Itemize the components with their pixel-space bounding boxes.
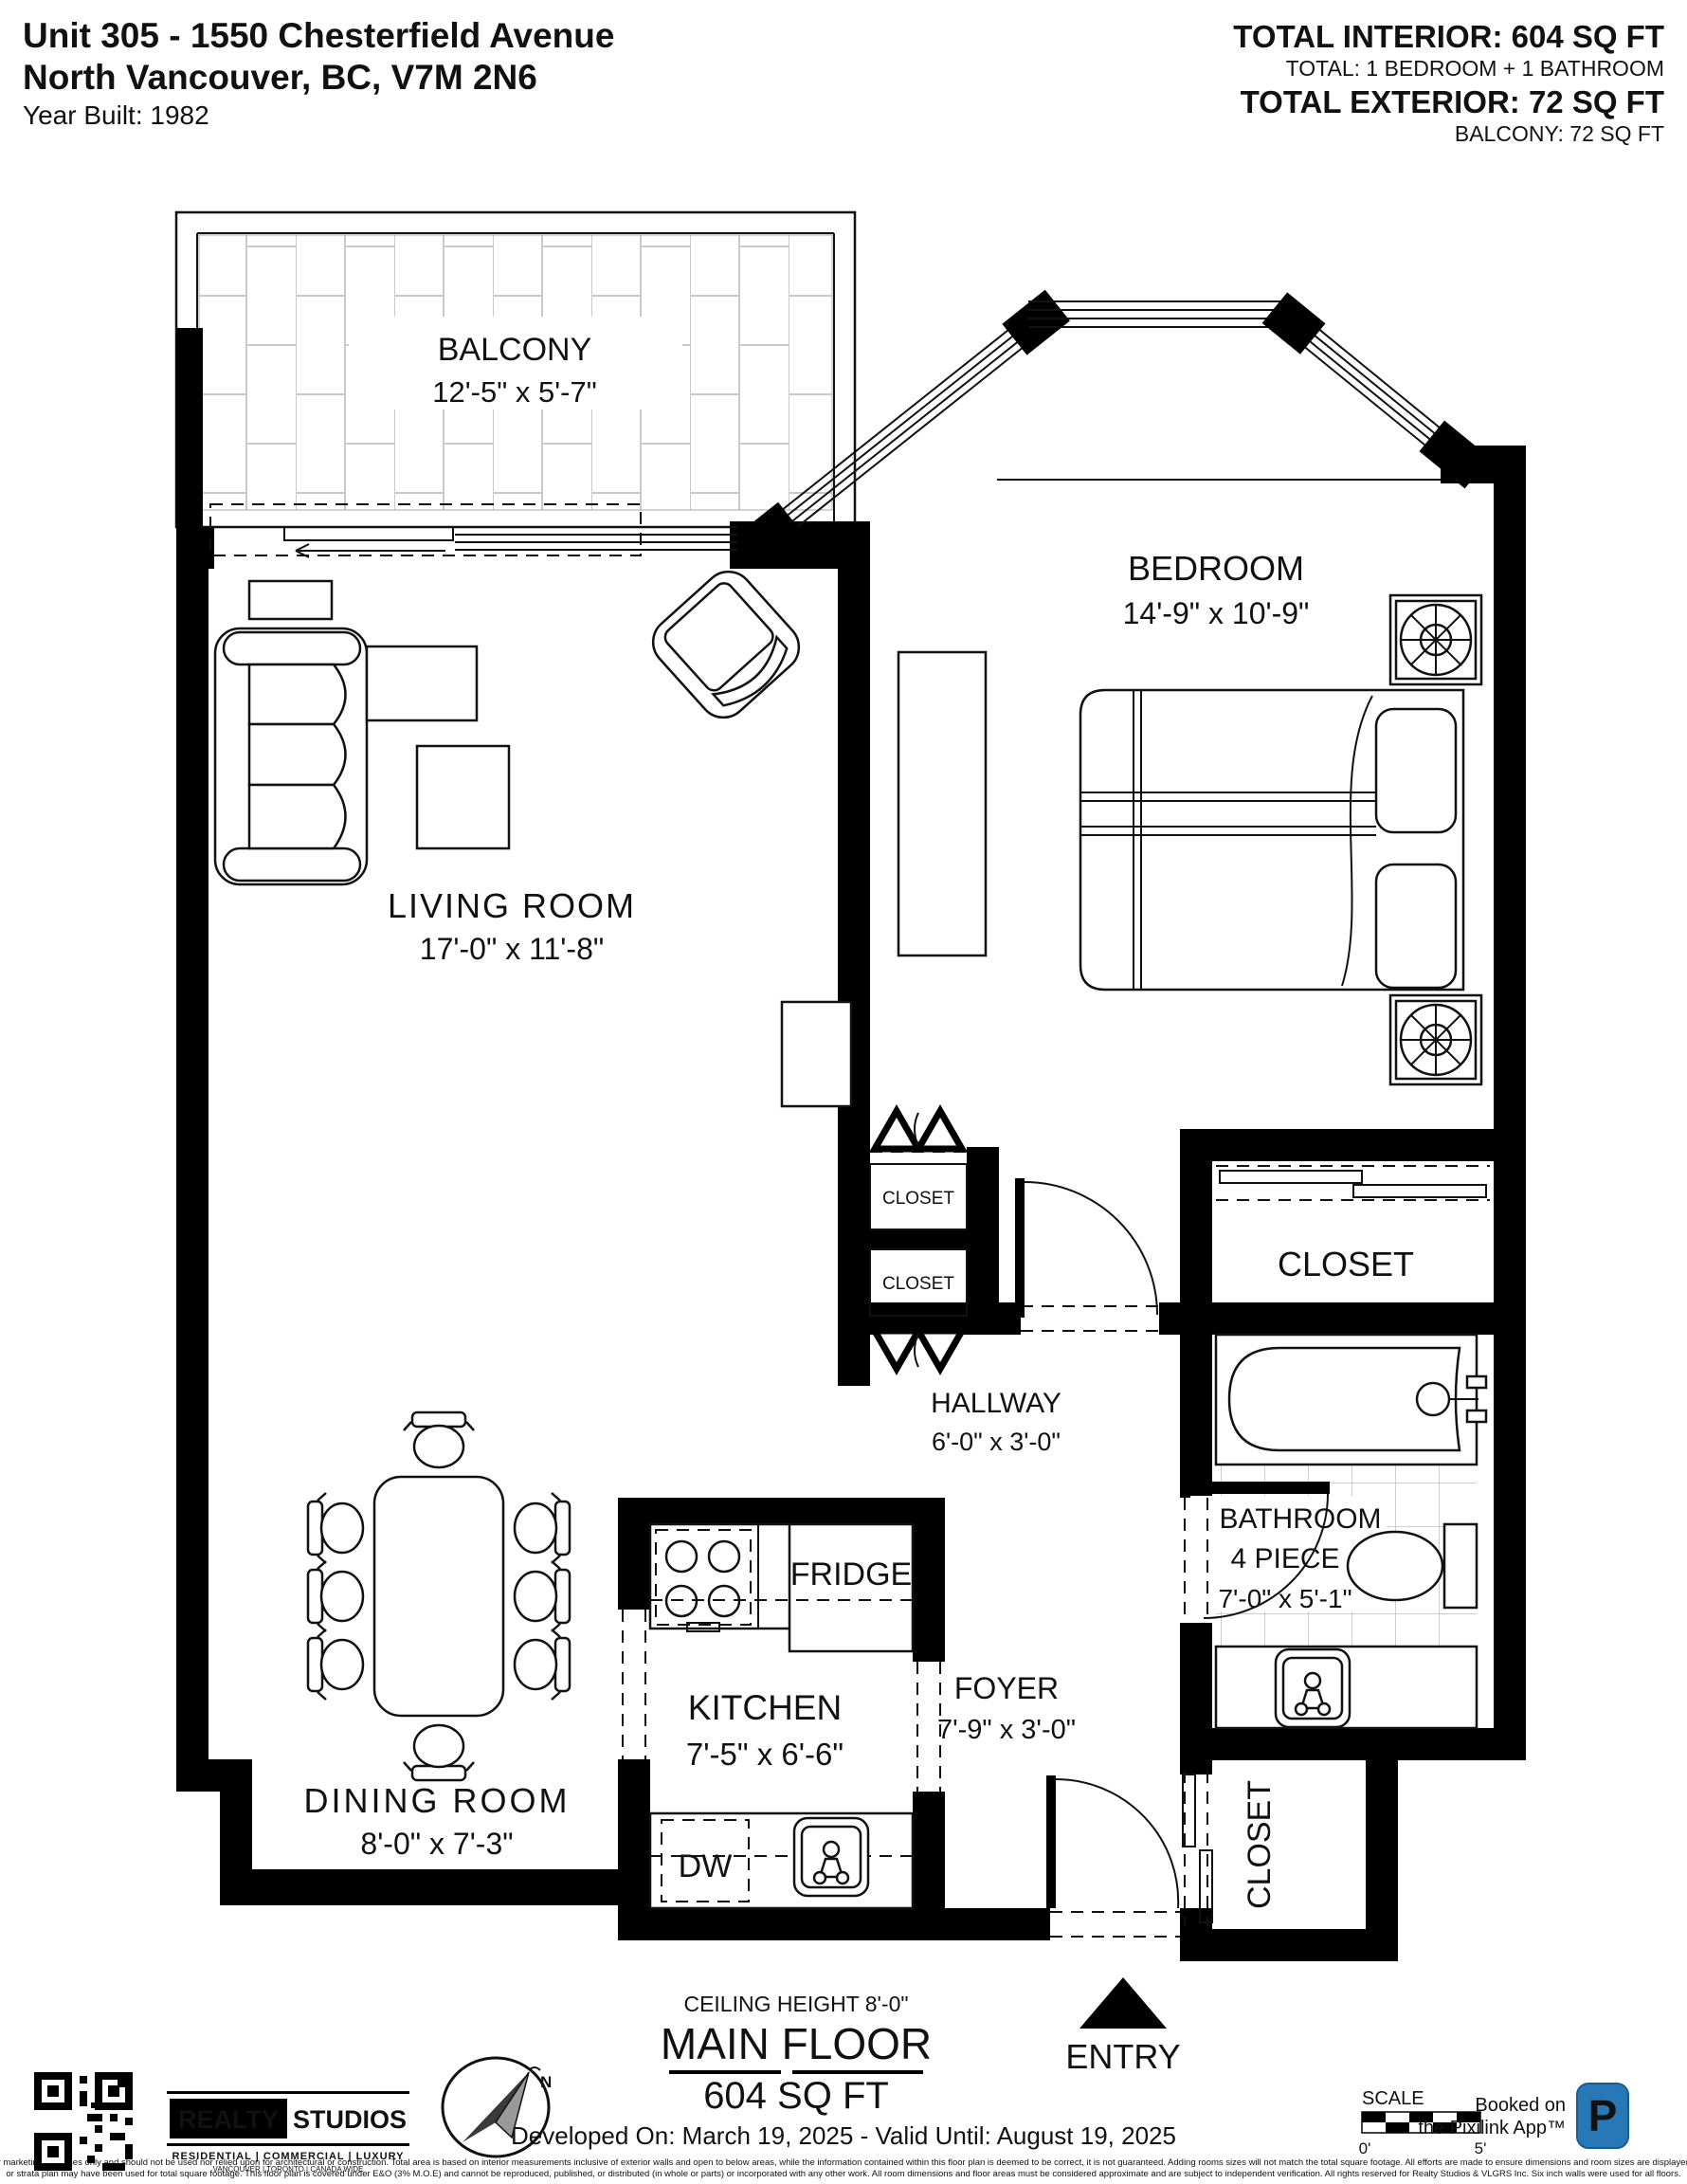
walkin-closet-label: CLOSET [1278,1245,1414,1283]
pixilink-line2: the Pixilink App™ [1418,2118,1566,2138]
header: Unit 305 - 1550 Chesterfield Avenue Nort… [23,16,1664,146]
living-room-label: LIVING ROOM [388,886,636,925]
side-table [249,581,332,619]
bedroom-door [1015,1178,1159,1331]
foyer-label: FOYER [954,1671,1059,1705]
logo-studios: STUDIOS [293,2105,407,2134]
dining-room-label: DINING ROOM [304,1781,571,1820]
total-interior: TOTAL INTERIOR: 604 SQ FT [1233,19,1664,54]
bathroom-type: 4 PIECE [1230,1543,1339,1574]
living-room-dims: 17'-0" x 11'-8" [420,932,604,966]
address-line2: North Vancouver, BC, V7M 2N6 [23,58,537,97]
nightstand-fan-icon [1390,595,1481,684]
svg-text:N: N [540,2073,552,2091]
bathroom-sink [1276,1649,1350,1727]
coffee-table [417,746,509,848]
logo-cities: VANCOUVER | TORONTO | CANADA WIDE [213,2165,364,2174]
media-console [782,1002,851,1106]
entry-arrow-icon [1079,1977,1167,2029]
plan-notes: CEILING HEIGHT 8'-0" MAIN FLOOR 604 SQ F… [661,1992,932,2117]
logo-tagline: RESIDENTIAL | COMMERCIAL | LUXURY [172,2151,405,2162]
entry-closet-label: CLOSET [1242,1780,1278,1909]
pillow [1376,864,1456,988]
main-floor-area: 604 SQ FT [703,2075,889,2117]
validity-dates: Developed On: March 19, 2025 - Valid Unt… [511,2121,1176,2150]
kitchen-dims: 7'-5" x 6'-6" [686,1737,843,1772]
total-exterior-sub: BALCONY: 72 SQ FT [1455,121,1664,146]
bay-window-right [1262,292,1490,488]
console-table [367,646,477,720]
kitchen: FRIDGE KITCHEN 7'-5" x 6'-6" DW [623,1524,940,1908]
walkin-closet: CLOSET [1216,1166,1490,1283]
qr-code [34,2072,133,2171]
total-exterior: TOTAL EXTERIOR: 72 SQ FT [1241,84,1664,119]
bed [1080,690,1463,990]
scale-label: SCALE [1362,2088,1424,2109]
entry: ENTRY [1065,1977,1180,2076]
total-interior-sub: TOTAL: 1 BEDROOM + 1 BATHROOM [1286,56,1664,81]
kitchen-label: KITCHEN [688,1688,842,1727]
living-room: LIVING ROOM 17'-0" x 11'-8" [215,561,851,1106]
bathroom-label: BATHROOM [1219,1503,1381,1535]
pillow [1376,709,1456,832]
scale-start: 0' [1359,2139,1371,2157]
scale-end: 5' [1475,2139,1487,2157]
entry-closet: CLOSET [1183,1771,1278,1926]
floorplan-drawing: Unit 305 - 1550 Chesterfield Avenue Nort… [0,0,1687,2184]
sofa [215,628,367,884]
sliding-door-opening [210,504,641,555]
nightstand-fan-icon [1390,995,1481,1084]
balcony-label: BALCONY [438,332,592,368]
hallway-dims: 6'-0" x 3'-0" [932,1428,1061,1456]
dresser [898,652,986,955]
balcony-dims: 12'-5" x 5'-7" [432,375,596,409]
realty-studios-logo: REALTY STUDIOS RESIDENTIAL | COMMERCIAL … [167,2091,409,2174]
balcony: BALCONY 12'-5" x 5'-7" [176,212,855,569]
logo-realty: REALTY [178,2105,279,2134]
bedroom-label: BEDROOM [1128,549,1304,588]
dining-room: DINING ROOM 8'-0" x 7'-3" [304,1412,571,1861]
address-line1: Unit 305 - 1550 Chesterfield Avenue [23,16,614,55]
hallway-label: HALLWAY [931,1388,1061,1419]
floorplan-page: { "header": { "address_line1": "Unit 305… [0,0,1687,2184]
bathroom: BATHROOM 4 PIECE 7'-0" x 5'-1" [1185,1335,1486,1728]
bifold-door-icon [875,1111,962,1149]
dining-room-dims: 8'-0" x 7'-3" [360,1827,513,1861]
compass-icon: N [443,2058,552,2157]
bifold-door-icon [875,1331,962,1369]
pixilink-p-letter: P [1588,2091,1618,2140]
bay-window-top [1028,301,1289,327]
dining-table [374,1477,503,1716]
kitchen-sink [794,1818,868,1896]
ceiling-height: CEILING HEIGHT 8'-0" [683,1992,908,2016]
closet1-label: CLOSET [882,1189,954,1209]
armchair [643,561,808,727]
entry-door [1046,1775,1180,1937]
closet2-label: CLOSET [882,1274,954,1294]
bedroom-dims: 14'-9" x 10'-9" [1123,596,1310,630]
hallway: HALLWAY 6'-0" x 3'-0" [931,1388,1061,1456]
bathtub [1216,1335,1486,1465]
entry-label: ENTRY [1065,2037,1180,2076]
foyer-dims: 7'-9" x 3'-0" [937,1715,1076,1745]
dishwasher-label: DW [679,1848,733,1884]
foyer: FOYER 7'-9" x 3'-0" [937,1671,1180,1937]
living-window [455,527,737,550]
main-floor-label: MAIN FLOOR [661,2019,932,2068]
year-built: Year Built: 1982 [23,100,209,130]
bathroom-dims: 7'-0" x 5'-1" [1218,1584,1351,1613]
sliding-door-panel [284,527,453,540]
pixilink-line1: Booked on [1475,2095,1566,2116]
fridge-label: FRIDGE [790,1556,912,1592]
